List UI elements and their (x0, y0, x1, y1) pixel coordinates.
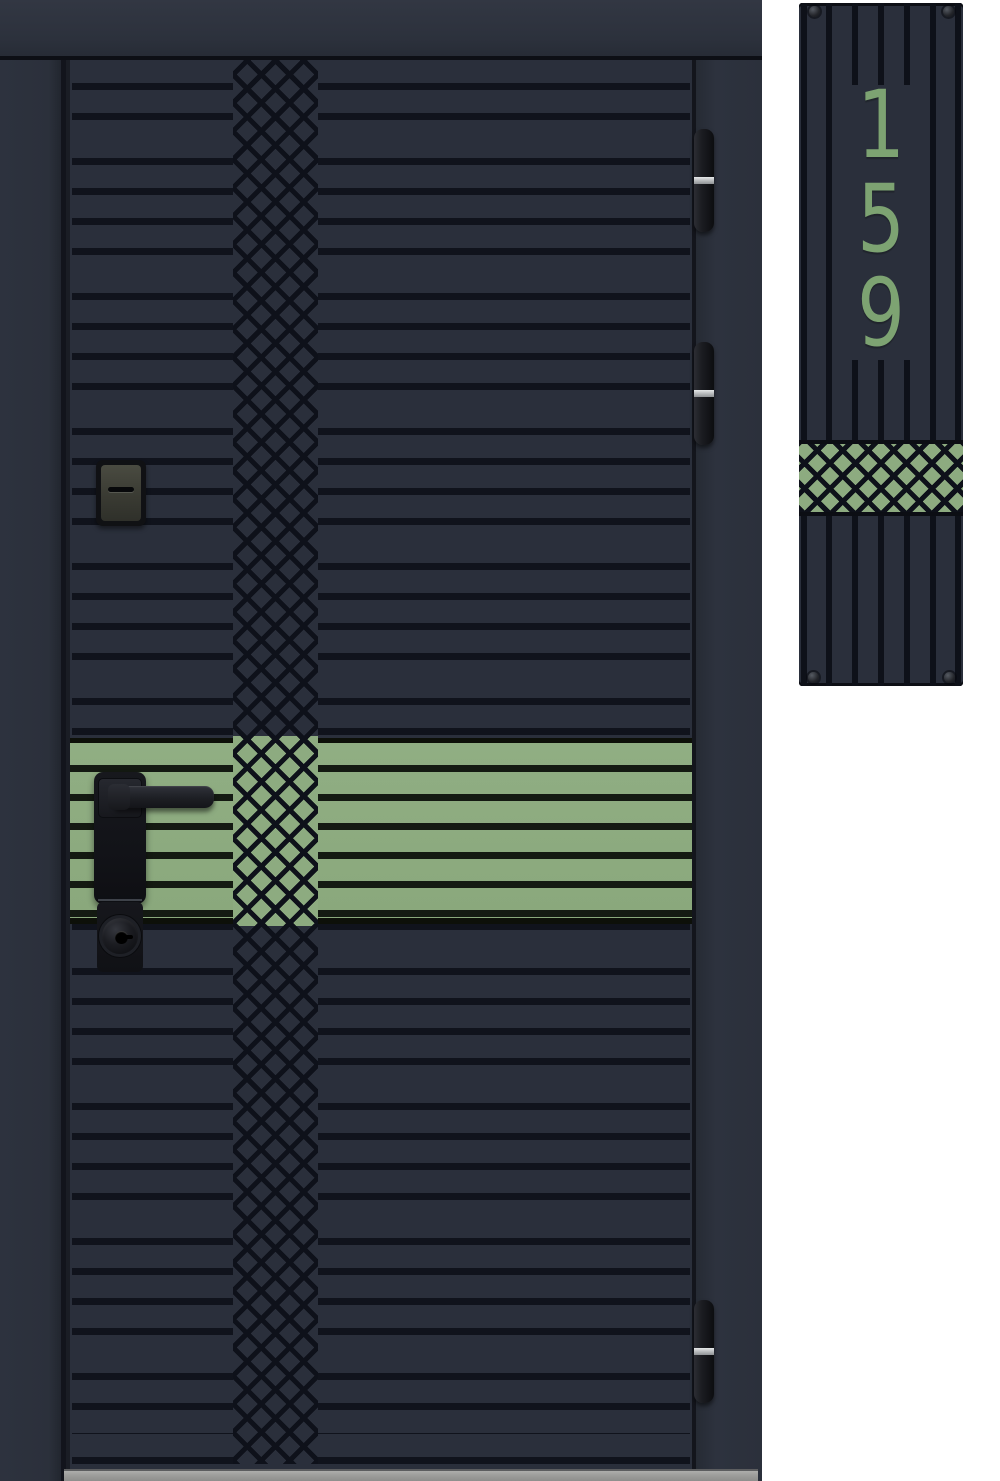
lattice-lines (233, 60, 318, 1464)
house-number-plaque: 1 5 9 (799, 3, 963, 686)
hinge-pin-ring (694, 177, 714, 184)
house-number-digit: 1 (815, 79, 946, 173)
house-number: 1 5 9 (815, 79, 946, 361)
screw (808, 672, 819, 683)
house-number-digit: 9 (815, 267, 946, 361)
house-number-digit: 5 (815, 173, 946, 267)
door-frame-right (696, 60, 762, 1481)
key-cylinder (99, 915, 141, 957)
accent-band (70, 738, 692, 924)
auxiliary-lock-face (101, 465, 141, 521)
hinge-middle (694, 342, 714, 445)
door-frame-top (0, 0, 762, 60)
keyhole (115, 931, 128, 944)
screw (943, 6, 954, 17)
hinge-pin-ring (694, 390, 714, 397)
hinge-pin-ring (694, 1348, 714, 1355)
door-leaf (66, 60, 696, 1469)
hinge-bottom (694, 1300, 714, 1403)
screw (809, 6, 820, 17)
plaque-accent-band (799, 440, 963, 516)
plate-separator (98, 899, 142, 901)
threshold (64, 1469, 758, 1481)
entry-door (0, 0, 762, 1481)
lattice-column (233, 60, 318, 1464)
screw (944, 672, 955, 683)
auxiliary-lock-slot (108, 487, 134, 492)
lever-handle (114, 786, 214, 808)
hinge-top (694, 129, 714, 232)
door-frame-left (0, 60, 66, 1481)
door-product-image: 1 5 9 (0, 0, 1000, 1481)
auxiliary-lock (96, 460, 146, 526)
